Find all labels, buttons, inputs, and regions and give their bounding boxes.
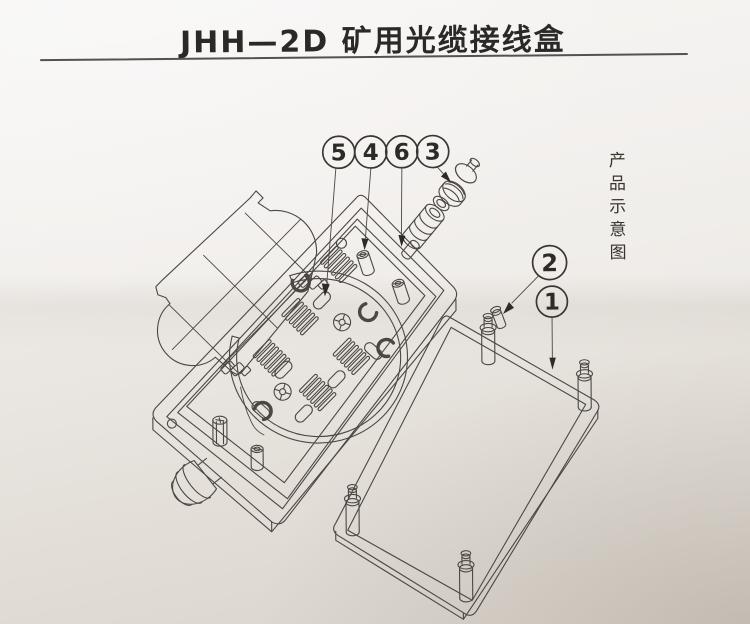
box-lid — [155, 178, 417, 468]
box-cable-gland — [163, 451, 227, 514]
svg-text:2: 2 — [541, 249, 558, 277]
plate-post — [458, 551, 474, 602]
fiber-guide-horn — [376, 337, 394, 357]
callout-6: 6 — [386, 136, 419, 247]
cable-pad — [326, 369, 347, 390]
standing-screw — [391, 278, 410, 306]
photographed-page: JHH—2D 矿用光缆接线盒 产品示意图 — [0, 0, 750, 624]
svg-text:5: 5 — [331, 140, 347, 166]
tray-strap — [241, 387, 264, 435]
splice-holder — [253, 339, 291, 377]
tray-screw — [272, 381, 293, 402]
gland-cap — [452, 153, 486, 187]
fiber-guide-horn — [356, 303, 378, 324]
plate-thickness — [335, 410, 600, 620]
splice-tray — [185, 226, 426, 484]
junction-box-base — [151, 195, 458, 533]
svg-text:1: 1 — [544, 290, 560, 316]
cable-pad — [311, 290, 332, 311]
mounting-plate — [332, 304, 601, 620]
splice-holder — [333, 337, 371, 375]
cable-gland-assembly — [399, 152, 487, 252]
arrowhead — [503, 302, 514, 314]
svg-text:4: 4 — [363, 140, 379, 166]
arrowhead — [361, 238, 368, 250]
tray-screw — [331, 312, 352, 333]
gland-insert-item6 — [400, 239, 420, 261]
technical-drawing: 5 4 6 3 — [0, 0, 750, 624]
callout-1: 1 — [536, 286, 568, 370]
svg-text:6: 6 — [394, 140, 410, 166]
callout-3: 3 — [417, 135, 451, 182]
standing-screw-item4 — [356, 249, 375, 277]
svg-text:3: 3 — [425, 139, 441, 165]
arrowhead — [322, 283, 330, 296]
gland-nut — [435, 177, 469, 211]
cable-pad — [293, 403, 314, 424]
lid-latch — [220, 354, 251, 385]
arrowhead — [549, 358, 556, 370]
paper-sheet: JHH—2D 矿用光缆接线盒 产品示意图 — [0, 0, 750, 624]
